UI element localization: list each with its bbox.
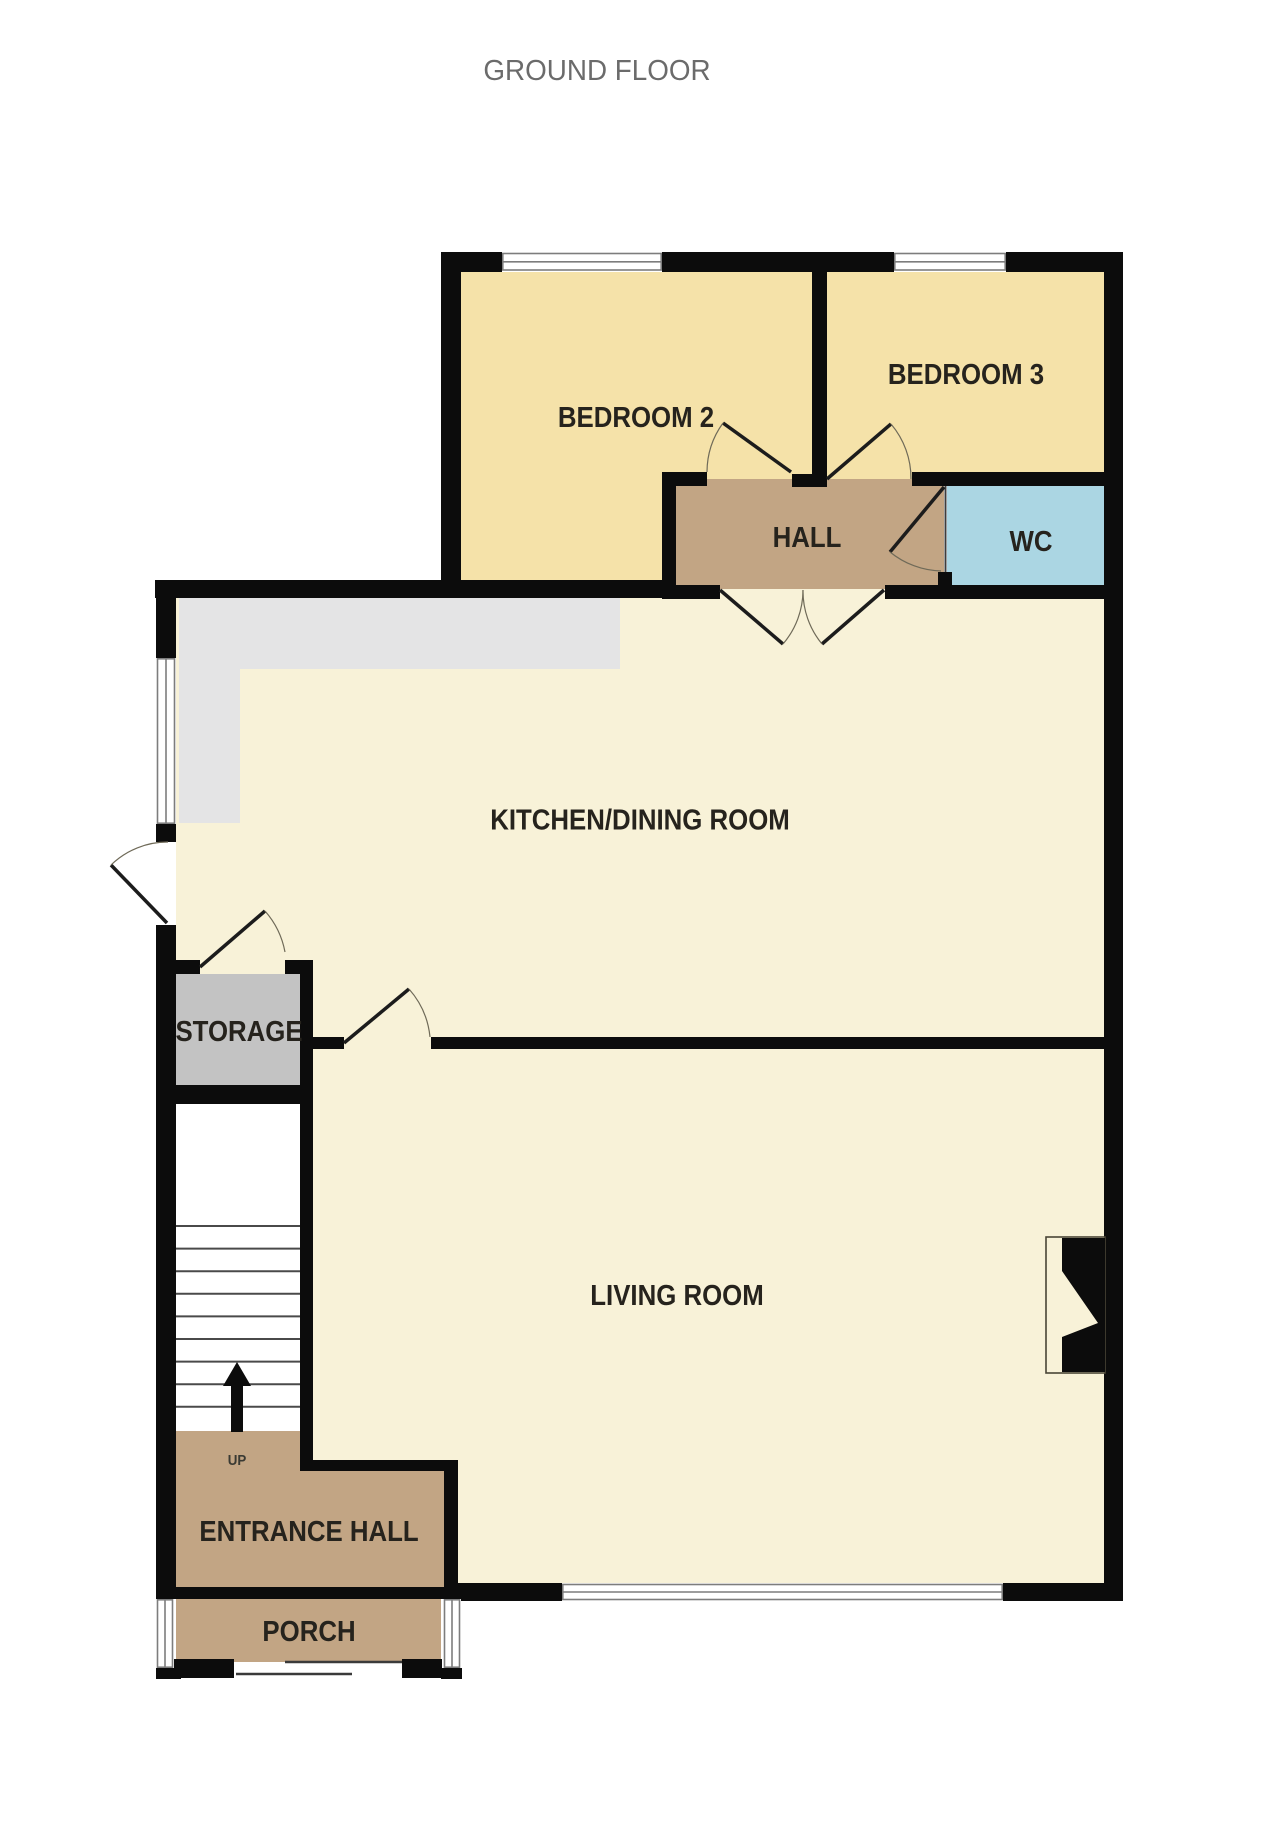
svg-text:LIVING ROOM: LIVING ROOM xyxy=(590,1279,763,1312)
svg-text:BEDROOM 2: BEDROOM 2 xyxy=(558,401,714,434)
svg-text:KITCHEN/DINING ROOM: KITCHEN/DINING ROOM xyxy=(490,803,790,836)
svg-text:STORAGE: STORAGE xyxy=(175,1015,302,1048)
svg-text:WC: WC xyxy=(1010,525,1053,558)
svg-text:BEDROOM 3: BEDROOM 3 xyxy=(888,358,1044,391)
svg-text:UP: UP xyxy=(228,1452,247,1469)
svg-text:HALL: HALL xyxy=(773,521,842,554)
svg-text:PORCH: PORCH xyxy=(262,1615,355,1648)
svg-text:ENTRANCE HALL: ENTRANCE HALL xyxy=(199,1515,418,1548)
svg-text:GROUND FLOOR: GROUND FLOOR xyxy=(483,54,710,87)
